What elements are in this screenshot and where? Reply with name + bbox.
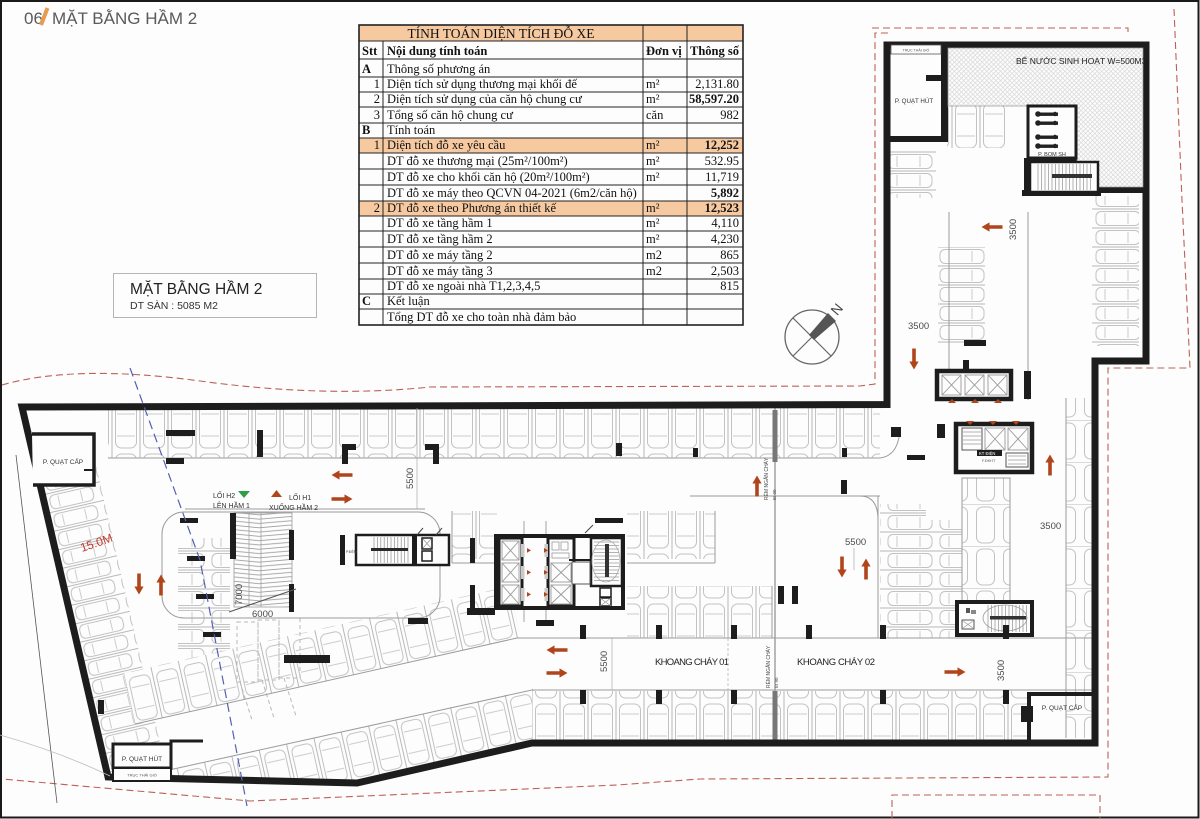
svg-text:3500: 3500 bbox=[908, 321, 929, 332]
svg-text:865: 865 bbox=[720, 248, 739, 262]
svg-text:KT ĐIỆN: KT ĐIỆN bbox=[979, 451, 995, 456]
svg-text:Đơn vị: Đơn vị bbox=[646, 44, 682, 58]
svg-text:2,131.80: 2,131.80 bbox=[695, 77, 739, 91]
svg-text:Thông số phương án: Thông số phương án bbox=[387, 62, 491, 76]
svg-text:DT đỗ xe ngoài nhà T1,2,3,4,5: DT đỗ xe ngoài nhà T1,2,3,4,5 bbox=[387, 279, 540, 293]
svg-text:B: B bbox=[362, 123, 370, 137]
svg-text:3: 3 bbox=[374, 108, 380, 122]
svg-text:3500: 3500 bbox=[1008, 219, 1019, 240]
svg-text:P. QUẠT HÚT: P. QUẠT HÚT bbox=[122, 754, 162, 763]
svg-text:DT đỗ xe tầng hầm 2: DT đỗ xe tầng hầm 2 bbox=[387, 232, 493, 246]
svg-text:TÍNH TOÁN DIỆN TÍCH ĐỖ XE: TÍNH TOÁN DIỆN TÍCH ĐỖ XE bbox=[407, 26, 594, 41]
svg-text:RÈM NGĂN CHÁY: RÈM NGĂN CHÁY bbox=[763, 457, 770, 500]
svg-text:06: 06 bbox=[24, 9, 43, 28]
svg-text:DT đỗ xe tầng hầm 1: DT đỗ xe tầng hầm 1 bbox=[387, 216, 493, 230]
svg-text:4,230: 4,230 bbox=[711, 232, 739, 246]
svg-text:Diện tích đỗ xe yêu cầu: Diện tích đỗ xe yêu cầu bbox=[387, 138, 506, 152]
svg-text:11,719: 11,719 bbox=[705, 170, 739, 184]
svg-text:TRỤC THẢI GIÓ: TRỤC THẢI GIÓ bbox=[903, 48, 930, 53]
svg-text:EI 90: EI 90 bbox=[772, 489, 777, 500]
svg-text:TRỤC THẢI GIÓ: TRỤC THẢI GIÓ bbox=[127, 773, 157, 778]
svg-text:MẶT BẰNG HẦM 2: MẶT BẰNG HẦM 2 bbox=[130, 280, 262, 298]
svg-text:A: A bbox=[362, 62, 371, 76]
svg-text:Thông số: Thông số bbox=[690, 44, 740, 58]
svg-text:EI 90: EI 90 bbox=[774, 677, 779, 688]
svg-text:F.ĐKHT: F.ĐKHT bbox=[982, 459, 996, 463]
svg-text:DT đỗ xe cho khối căn hộ (20m²: DT đỗ xe cho khối căn hộ (20m²/100m²) bbox=[387, 170, 590, 184]
svg-text:DT đỗ xe thương mại (25m²/100m: DT đỗ xe thương mại (25m²/100m²) bbox=[387, 154, 568, 168]
svg-text:DT đỗ xe máy tầng 3: DT đỗ xe máy tầng 3 bbox=[387, 264, 493, 278]
svg-text:m²: m² bbox=[646, 154, 660, 168]
svg-text:Kết luận: Kết luận bbox=[387, 294, 430, 308]
svg-text:5,892: 5,892 bbox=[711, 186, 739, 200]
svg-text:982: 982 bbox=[720, 108, 739, 122]
svg-text:m2: m2 bbox=[646, 264, 662, 278]
svg-text:P.ĐỆM: P.ĐỆM bbox=[346, 549, 357, 554]
svg-text:4,110: 4,110 bbox=[711, 216, 739, 230]
svg-text:1: 1 bbox=[374, 138, 380, 152]
svg-text:3500: 3500 bbox=[996, 660, 1007, 681]
svg-text:815: 815 bbox=[720, 279, 739, 293]
svg-text:7000: 7000 bbox=[234, 584, 245, 605]
svg-text:6000: 6000 bbox=[252, 609, 273, 620]
svg-text:2,503: 2,503 bbox=[711, 264, 739, 278]
svg-text:5500: 5500 bbox=[599, 651, 610, 672]
svg-text:BỂ NƯỚC SINH HOẠT W=500M3: BỂ NƯỚC SINH HOẠT W=500M3 bbox=[1016, 55, 1147, 66]
svg-text:căn: căn bbox=[646, 108, 664, 122]
svg-text:Tổng DT đỗ xe cho toàn nhà đả: Tổng DT đỗ xe cho toàn nhà đảm bảo bbox=[387, 310, 576, 324]
svg-text:Stt: Stt bbox=[362, 44, 378, 58]
svg-text:m²: m² bbox=[646, 170, 660, 184]
svg-text:m²: m² bbox=[646, 216, 660, 230]
svg-text:2: 2 bbox=[374, 92, 380, 106]
svg-text:Diện tích sử dụng của căn hộ c: Diện tích sử dụng của căn hộ chung cư bbox=[387, 92, 583, 106]
svg-text:Tính toán: Tính toán bbox=[387, 123, 436, 137]
svg-text:KHOANG CHÁY 01: KHOANG CHÁY 01 bbox=[655, 657, 729, 668]
svg-text:m²: m² bbox=[646, 138, 660, 152]
svg-text:Nội dung tính toán: Nội dung tính toán bbox=[387, 44, 487, 58]
svg-text:m²: m² bbox=[646, 232, 660, 246]
svg-text:1: 1 bbox=[374, 77, 380, 91]
svg-text:m²: m² bbox=[646, 77, 660, 91]
svg-text:RÈM NGĂN CHÁY: RÈM NGĂN CHÁY bbox=[765, 645, 772, 688]
svg-text:58,597.20: 58,597.20 bbox=[689, 92, 739, 106]
svg-text:DT SÀN : 5085 M2: DT SÀN : 5085 M2 bbox=[130, 299, 218, 312]
svg-text:12,252: 12,252 bbox=[705, 138, 739, 152]
svg-text:2: 2 bbox=[374, 201, 380, 215]
svg-text:C: C bbox=[362, 294, 371, 308]
svg-text:DT đỗ xe máy tầng 2: DT đỗ xe máy tầng 2 bbox=[387, 248, 493, 262]
svg-text:m2: m2 bbox=[646, 248, 662, 262]
svg-text:3500: 3500 bbox=[1040, 521, 1061, 532]
svg-text:m²: m² bbox=[646, 201, 660, 215]
svg-text:5500: 5500 bbox=[845, 537, 866, 548]
svg-text:m²: m² bbox=[646, 92, 660, 106]
svg-text:MẶT BẰNG HẦM 2: MẶT BẰNG HẦM 2 bbox=[52, 9, 197, 28]
svg-text:DT đỗ xe theo Phương án thiết: DT đỗ xe theo Phương án thiết kế bbox=[387, 201, 556, 215]
svg-text:Diện tích sử dụng thương mại k: Diện tích sử dụng thương mại khối đế bbox=[387, 77, 577, 91]
svg-text:P. QUẠT HÚT: P. QUẠT HÚT bbox=[895, 98, 933, 105]
svg-text:5500: 5500 bbox=[405, 468, 416, 489]
svg-text:P. BOM SH: P. BOM SH bbox=[1038, 152, 1066, 158]
svg-text:KHOANG CHÁY 02: KHOANG CHÁY 02 bbox=[797, 657, 875, 668]
svg-text:Tổng số căn hộ chung cư: Tổng số căn hộ chung cư bbox=[387, 108, 514, 122]
svg-text:DT đỗ xe máy theo QCVN 04-2021: DT đỗ xe máy theo QCVN 04-2021 (6m2/căn … bbox=[387, 186, 637, 200]
svg-text:532.95: 532.95 bbox=[705, 154, 739, 168]
svg-text:12,523: 12,523 bbox=[705, 201, 739, 215]
